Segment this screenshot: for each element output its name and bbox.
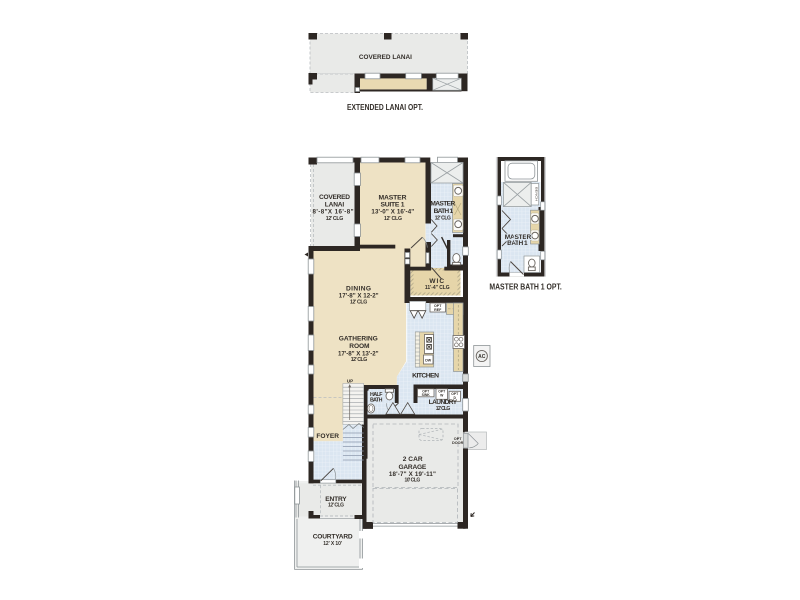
svg-text:DOOR: DOOR: [452, 441, 464, 445]
svg-text:12' CLG: 12' CLG: [328, 503, 344, 509]
svg-text:COVERED: COVERED: [319, 194, 350, 201]
svg-text:KITCHEN: KITCHEN: [412, 373, 439, 380]
svg-text:LAUNDRY: LAUNDRY: [429, 399, 458, 406]
svg-text:SINK: SINK: [422, 393, 431, 397]
svg-text:FOYER: FOYER: [316, 433, 339, 440]
svg-text:DINING: DINING: [346, 285, 371, 292]
svg-text:12' CLG: 12' CLG: [384, 216, 402, 222]
svg-text:REF: REF: [434, 308, 442, 312]
svg-text:SUITE 1: SUITE 1: [381, 202, 405, 209]
svg-text:COURTYARD: COURTYARD: [313, 534, 353, 541]
svg-text:MASTER BATH 1 OPT.: MASTER BATH 1 OPT.: [489, 282, 562, 291]
svg-text:EXTENDED LANAI OPT.: EXTENDED LANAI OPT.: [347, 103, 423, 112]
svg-text:UP: UP: [347, 379, 353, 384]
svg-text:11'-4" CLG: 11'-4" CLG: [425, 285, 450, 291]
svg-text:BATH: BATH: [370, 398, 383, 404]
svg-text:12' CLG: 12' CLG: [350, 299, 367, 305]
svg-text:2 CAR: 2 CAR: [403, 456, 423, 463]
svg-text:GARAGE: GARAGE: [399, 464, 427, 471]
svg-text:AC: AC: [478, 354, 486, 360]
svg-text:12' CLG: 12' CLG: [435, 215, 451, 221]
svg-text:12' X 10': 12' X 10': [323, 541, 342, 547]
svg-text:13'-0" X 16'-4": 13'-0" X 16'-4": [371, 209, 414, 216]
svg-text:12' CLG: 12' CLG: [351, 357, 368, 363]
svg-text:MASTER: MASTER: [430, 200, 455, 207]
svg-text:12' CLG: 12' CLG: [436, 406, 451, 412]
svg-text:BATH 1: BATH 1: [507, 240, 528, 247]
svg-text:BATH 1: BATH 1: [434, 208, 454, 215]
svg-text:LANAI: LANAI: [325, 201, 345, 208]
svg-text:MASTER: MASTER: [379, 195, 407, 202]
svg-text:12' CLG: 12' CLG: [326, 216, 344, 222]
svg-text:DW: DW: [425, 359, 432, 363]
svg-text:BENCH: BENCH: [534, 187, 538, 201]
svg-text:ROOM: ROOM: [349, 343, 370, 350]
svg-text:10' CLG: 10' CLG: [405, 478, 421, 484]
svg-text:COVERED LANAI: COVERED LANAI: [359, 54, 412, 61]
svg-text:8'-8"X 16'-8": 8'-8"X 16'-8": [313, 209, 354, 216]
svg-text:GATHERING: GATHERING: [339, 336, 378, 343]
